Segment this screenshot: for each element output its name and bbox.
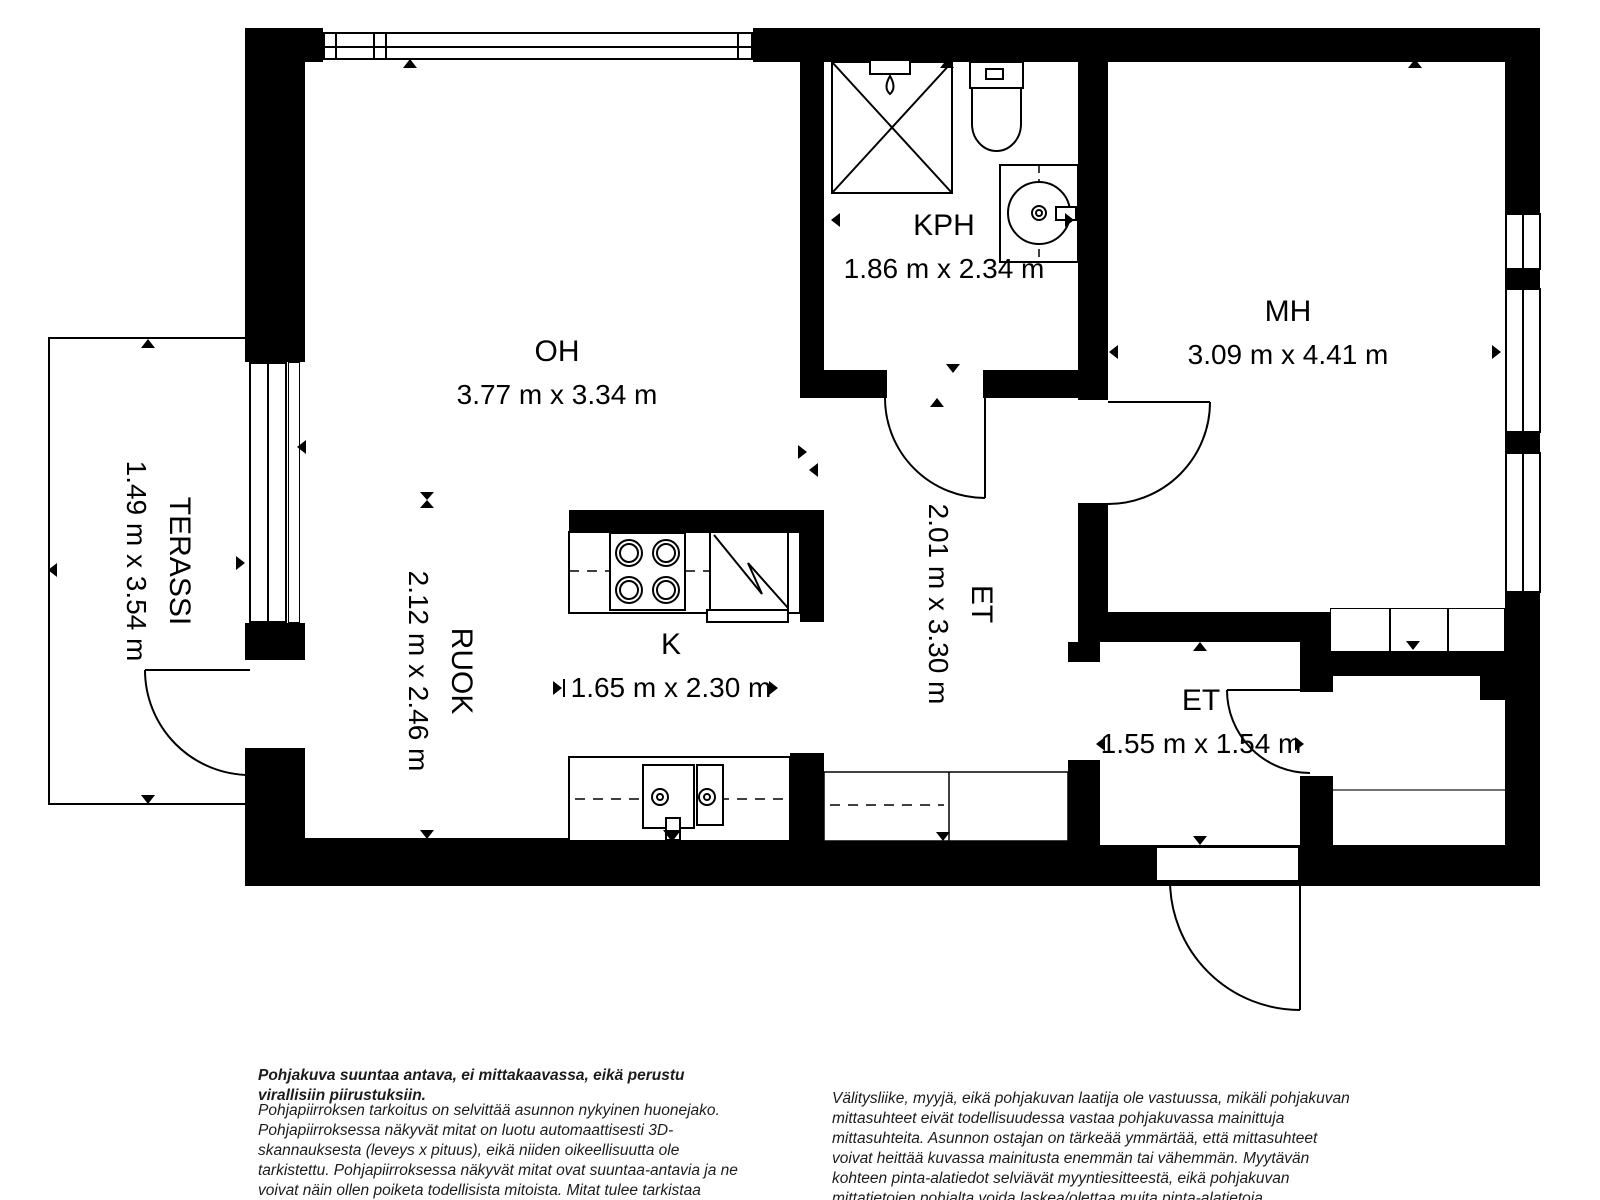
- measurement-triangle-icon: [1492, 345, 1501, 359]
- room-dims: 1.86 m x 2.34 m: [844, 247, 1045, 290]
- mh-door-arc-icon: [1108, 402, 1210, 504]
- kitchen-sink-icon: [569, 757, 790, 841]
- room-label-mh: MH 3.09 m x 4.41 m: [1188, 290, 1389, 376]
- mh-window-icon-1: [1505, 213, 1541, 270]
- disclaimer-left: Pohjapiirroksen tarkoitus on selvittää a…: [258, 1101, 742, 1200]
- mh-door-opening: [1078, 398, 1108, 505]
- measurement-triangle-icon: [831, 213, 840, 227]
- room-label-kph: KPH 1.86 m x 2.34 m: [844, 204, 1045, 290]
- measurement-triangle-icon: [809, 463, 818, 477]
- wall-closet-bottom: [1330, 652, 1540, 676]
- room-label-oh: OH 3.77 m x 3.34 m: [457, 330, 658, 416]
- room-name: K: [571, 623, 772, 666]
- room-name: RUOK: [440, 571, 483, 772]
- terrace-window-sill: [288, 362, 300, 623]
- room-dims: 2.01 m x 3.30 m: [917, 504, 960, 705]
- oh-window-icon: [323, 32, 753, 60]
- room-dims: 3.09 m x 4.41 m: [1188, 333, 1389, 376]
- wardrobe-icon: [824, 772, 1068, 841]
- room-name: ET: [1101, 679, 1302, 722]
- room-dims: 2.12 m x 2.46 m: [397, 571, 440, 772]
- wall-kitchen-stub-h: [569, 510, 824, 532]
- room-dims: 1.65 m x 2.30 m: [571, 666, 772, 709]
- room-dims: 1.55 m x 1.54 m: [1101, 722, 1302, 765]
- kitchen-counter-icon: [569, 532, 800, 613]
- room-dims: 3.77 m x 3.34 m: [457, 373, 658, 416]
- entrance-door-arc-icon: [1170, 880, 1300, 1010]
- measurement-triangle-icon: [1065, 213, 1074, 227]
- wall-oh-kph: [800, 28, 824, 398]
- room-label-et: ET 2.01 m x 3.30 m: [917, 504, 1003, 705]
- et-et2-opening: [1068, 660, 1100, 762]
- measurement-triangle-icon: [420, 500, 434, 508]
- room-dims: 1.49 m x 3.54 m: [115, 461, 158, 662]
- room-name: ET: [960, 504, 1003, 705]
- room-label-ruok: RUOK 2.12 m x 2.46 m: [397, 571, 483, 772]
- room-name: TERASSI: [158, 461, 201, 662]
- wall-et2-right-a: [1300, 642, 1333, 690]
- wall-kph-mh: [1078, 28, 1108, 398]
- room-name: KPH: [844, 204, 1045, 247]
- terrace-window-icon: [249, 362, 287, 623]
- et2-storage-door-opening: [1300, 690, 1333, 778]
- mh-window-icon-3: [1505, 452, 1541, 593]
- wall-counter-stub: [790, 753, 824, 840]
- measurement-triangle-icon: [553, 681, 562, 695]
- wall-bottom-right: [1068, 845, 1540, 886]
- disclaimer-title: Pohjakuva suuntaa antava, ei mittakaavas…: [258, 1066, 742, 1106]
- mh-window-icon-2: [1505, 288, 1541, 433]
- stove-icon: [610, 533, 685, 610]
- floor-plan: OH 3.77 m x 3.34 m KPH 1.86 m x 2.34 m M…: [0, 0, 1600, 1200]
- toilet-icon: [970, 62, 1023, 151]
- shower-icon: [832, 60, 952, 193]
- measurement-triangle-icon: [1193, 836, 1207, 845]
- room-label-et2: ET 1.55 m x 1.54 m: [1101, 679, 1302, 765]
- wall-et2-left-a: [1068, 642, 1100, 660]
- measurement-triangle-icon: [1109, 345, 1118, 359]
- entrance-door-opening: [1155, 848, 1300, 880]
- measurement-triangle-icon: [420, 492, 434, 500]
- kph-door-opening: [885, 370, 985, 398]
- room-label-terassi: TERASSI 1.49 m x 3.54 m: [115, 461, 201, 662]
- terrace-door-opening: [245, 658, 305, 750]
- wall-mh-bottom: [1078, 612, 1330, 642]
- wall-et2-left-b: [1068, 762, 1100, 845]
- room-name: OH: [457, 330, 658, 373]
- wall-et2-right-b: [1300, 778, 1333, 845]
- room-label-k: K 1.65 m x 2.30 m: [571, 623, 772, 709]
- disclaimer-right: Välitysliike, myyjä, eikä pohjakuvan laa…: [832, 1089, 1352, 1200]
- mh-closet-row: [1330, 608, 1505, 652]
- room-name: MH: [1188, 290, 1389, 333]
- fridge-icon: [707, 532, 788, 622]
- kph-door-arc-icon: [885, 398, 985, 498]
- measurement-triangle-icon: [930, 398, 944, 407]
- measurement-triangle-icon: [1193, 642, 1207, 651]
- wall-kitchen-stub-v: [800, 510, 824, 622]
- wall-storage-notch: [1480, 676, 1505, 700]
- measurement-triangle-icon: [798, 445, 807, 459]
- wall-bottom-left: [245, 838, 1068, 886]
